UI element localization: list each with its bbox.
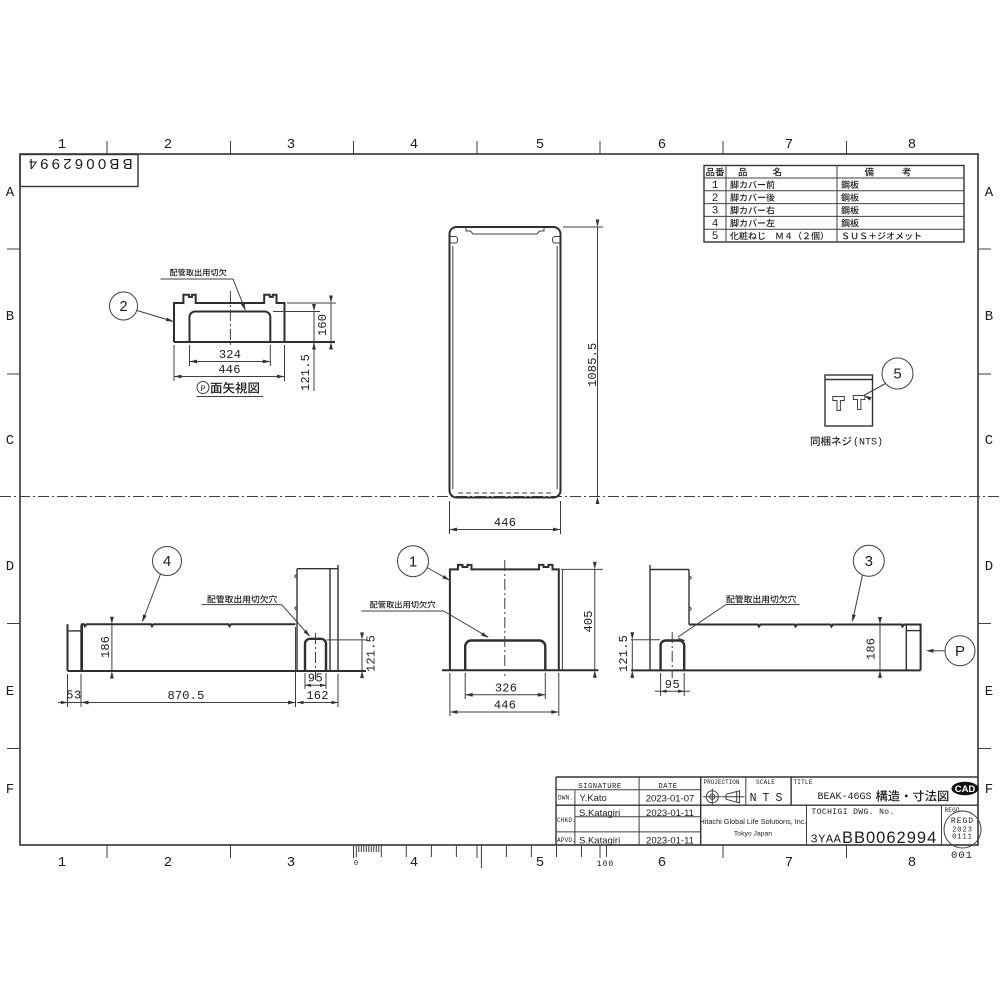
svg-text:TOCHIGI DWG. No.: TOCHIGI DWG. No. <box>812 808 895 817</box>
svg-text:5: 5 <box>536 855 544 871</box>
svg-text:5: 5 <box>712 231 719 243</box>
svg-text:446: 446 <box>494 699 516 713</box>
svg-text:BEAK-46GS: BEAK-46GS <box>818 792 872 803</box>
svg-text:95: 95 <box>665 678 680 692</box>
svg-text:2: 2 <box>119 299 127 315</box>
svg-text:446: 446 <box>218 363 240 377</box>
svg-text:A: A <box>985 185 994 201</box>
svg-text:C: C <box>6 433 14 449</box>
svg-text:2: 2 <box>712 193 719 205</box>
svg-text:P: P <box>955 643 965 660</box>
svg-text:4: 4 <box>410 855 418 871</box>
svg-text:DATE: DATE <box>658 783 677 791</box>
svg-text:2023-01-07: 2023-01-07 <box>646 794 695 805</box>
svg-text:S.Katagiri: S.Katagiri <box>579 808 620 819</box>
svg-text:Hitachi Global Life Solutions,: Hitachi Global Life Solutions, Inc. <box>699 817 806 826</box>
svg-text:1: 1 <box>712 180 719 192</box>
svg-text:CHKD.: CHKD. <box>557 817 576 824</box>
svg-text:TITLE: TITLE <box>794 779 813 786</box>
svg-text:E: E <box>6 684 14 700</box>
svg-text:(NTS): (NTS) <box>853 437 883 449</box>
svg-text:160: 160 <box>316 314 330 336</box>
svg-text:2023-01-11: 2023-01-11 <box>646 836 694 847</box>
svg-text:C: C <box>985 433 993 449</box>
svg-text:E: E <box>985 684 993 700</box>
svg-text:5: 5 <box>893 366 901 383</box>
svg-text:4: 4 <box>163 553 171 570</box>
svg-text:1: 1 <box>58 137 66 153</box>
svg-text:SCALE: SCALE <box>756 779 775 786</box>
svg-text:186: 186 <box>99 636 113 658</box>
svg-text:5: 5 <box>536 137 544 153</box>
svg-text:2: 2 <box>164 137 172 153</box>
svg-text:3: 3 <box>287 855 295 871</box>
svg-text:D: D <box>6 559 14 575</box>
svg-text:121.5: 121.5 <box>365 635 379 672</box>
svg-text:405: 405 <box>582 610 596 632</box>
svg-text:SIGNATURE: SIGNATURE <box>578 783 621 791</box>
svg-text:326: 326 <box>495 682 517 696</box>
svg-text:1085.5: 1085.5 <box>586 343 600 387</box>
svg-text:BB0062994: BB0062994 <box>25 155 132 172</box>
svg-text:NTS: NTS <box>750 792 789 805</box>
svg-text:8: 8 <box>908 855 916 871</box>
svg-text:4: 4 <box>410 137 418 153</box>
svg-text:3: 3 <box>712 206 719 218</box>
svg-text:6: 6 <box>658 855 666 871</box>
svg-text:S.Katagiri: S.Katagiri <box>579 836 620 847</box>
svg-text:B: B <box>6 309 14 325</box>
svg-text:121.5: 121.5 <box>617 635 631 672</box>
svg-text:4: 4 <box>712 218 719 230</box>
svg-text:121.5: 121.5 <box>299 354 313 391</box>
svg-text:3: 3 <box>287 137 295 153</box>
svg-text:324: 324 <box>219 348 241 362</box>
svg-text:0: 0 <box>354 860 358 868</box>
svg-text:3YAA: 3YAA <box>811 833 842 847</box>
svg-text:B: B <box>985 309 993 325</box>
svg-text:53: 53 <box>66 689 81 703</box>
svg-text:APVD.: APVD. <box>557 837 576 844</box>
svg-text:8: 8 <box>908 137 916 153</box>
svg-text:1: 1 <box>58 855 66 871</box>
svg-text:1: 1 <box>409 554 417 571</box>
svg-text:CAD: CAD <box>955 784 976 795</box>
svg-text:F: F <box>6 782 14 798</box>
svg-text:2023-01-11: 2023-01-11 <box>646 808 694 819</box>
svg-text:F: F <box>985 782 993 798</box>
svg-text:P: P <box>201 385 206 394</box>
svg-text:7: 7 <box>785 137 793 153</box>
svg-text:2: 2 <box>164 855 172 871</box>
svg-text:A: A <box>6 185 15 201</box>
svg-text:Y.Kato: Y.Kato <box>580 793 607 804</box>
svg-text:DWN.: DWN. <box>558 795 573 802</box>
svg-text:PROJECTION: PROJECTION <box>704 779 740 786</box>
svg-text:BB0062994: BB0062994 <box>842 829 937 847</box>
svg-text:Tokyo Japan: Tokyo Japan <box>734 831 772 838</box>
svg-text:162: 162 <box>306 689 328 703</box>
svg-text:7: 7 <box>785 855 793 871</box>
svg-text:95: 95 <box>308 672 323 686</box>
svg-text:6: 6 <box>658 137 666 153</box>
svg-text:870.5: 870.5 <box>167 689 204 703</box>
svg-text:0111: 0111 <box>952 834 973 842</box>
svg-text:3: 3 <box>865 553 873 570</box>
svg-text:100: 100 <box>597 860 614 869</box>
svg-text:REGD: REGD <box>951 817 974 826</box>
svg-text:446: 446 <box>494 516 516 530</box>
svg-text:001: 001 <box>951 850 973 862</box>
svg-text:186: 186 <box>865 638 879 660</box>
svg-text:D: D <box>985 559 993 575</box>
